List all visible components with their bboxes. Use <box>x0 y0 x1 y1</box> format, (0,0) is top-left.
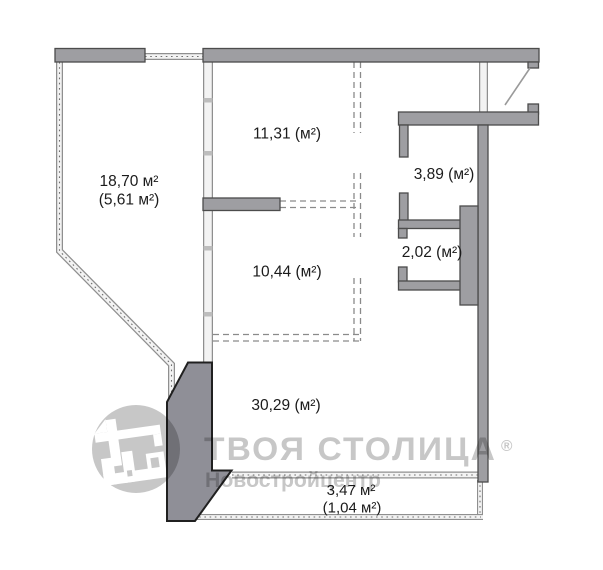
wall-segment-wc-left-a <box>399 229 408 239</box>
floor-plan: ТВОЯ СТОЛИЦА ® Новостройцентр 11,31 (м²)… <box>0 0 603 570</box>
watermark-registered-icon: ® <box>501 438 513 455</box>
entrance-door-leaf <box>505 68 530 105</box>
wall-segment-bath-wc-divider <box>399 220 463 229</box>
room-area-label-wc: 2,02 (м²) <box>402 244 463 261</box>
wall-segment-bath-left-b <box>400 193 409 221</box>
wall-segment-top-loggia <box>55 49 145 63</box>
room-area-label-bathroom: 3,89 (м²) <box>414 166 475 183</box>
watermark-brand-text: ТВОЯ СТОЛИЦА <box>204 431 497 467</box>
room-area-label-mid: 10,44 (м²) <box>252 264 321 281</box>
wall-segment-wc-bottom <box>399 281 463 290</box>
room-area-label-living: 30,29 (м²) <box>251 397 320 414</box>
wall-segment-right-main <box>478 125 488 482</box>
loggia-glazing-outline <box>60 57 204 399</box>
room-area-label-loggia-reduced: (5,61 м²) <box>99 192 160 209</box>
room-area-label-balcony-total: 3,47 м² <box>327 482 376 499</box>
wall-segment-hall-bottom <box>399 112 539 125</box>
room-area-label-balcony-reduced: (1,04 м²) <box>323 500 382 517</box>
wall-segment-bath-left-a <box>400 125 409 157</box>
loggia-band-inner <box>60 62 172 398</box>
wall-tick <box>204 312 213 317</box>
watermark: ТВОЯ СТОЛИЦА ® Новостройцентр <box>92 405 513 493</box>
wall-segment-top-main <box>203 49 539 63</box>
wall-tick <box>204 98 213 103</box>
wall-tick <box>204 246 213 251</box>
wall-segment-room-partition <box>203 198 280 211</box>
wall-tick <box>204 151 213 156</box>
room-area-label-top: 11,31 (м²) <box>253 126 321 143</box>
room-area-label-loggia-total: 18,70 м² <box>100 173 159 190</box>
floor-plan-page: ТВОЯ СТОЛИЦА ® Новостройцентр 11,31 (м²)… <box>0 0 603 570</box>
wall-segment-vent-column <box>460 206 478 305</box>
wall-segment-entry-jamb-top <box>528 62 539 68</box>
wall-segment-wc-left-b <box>399 267 408 282</box>
